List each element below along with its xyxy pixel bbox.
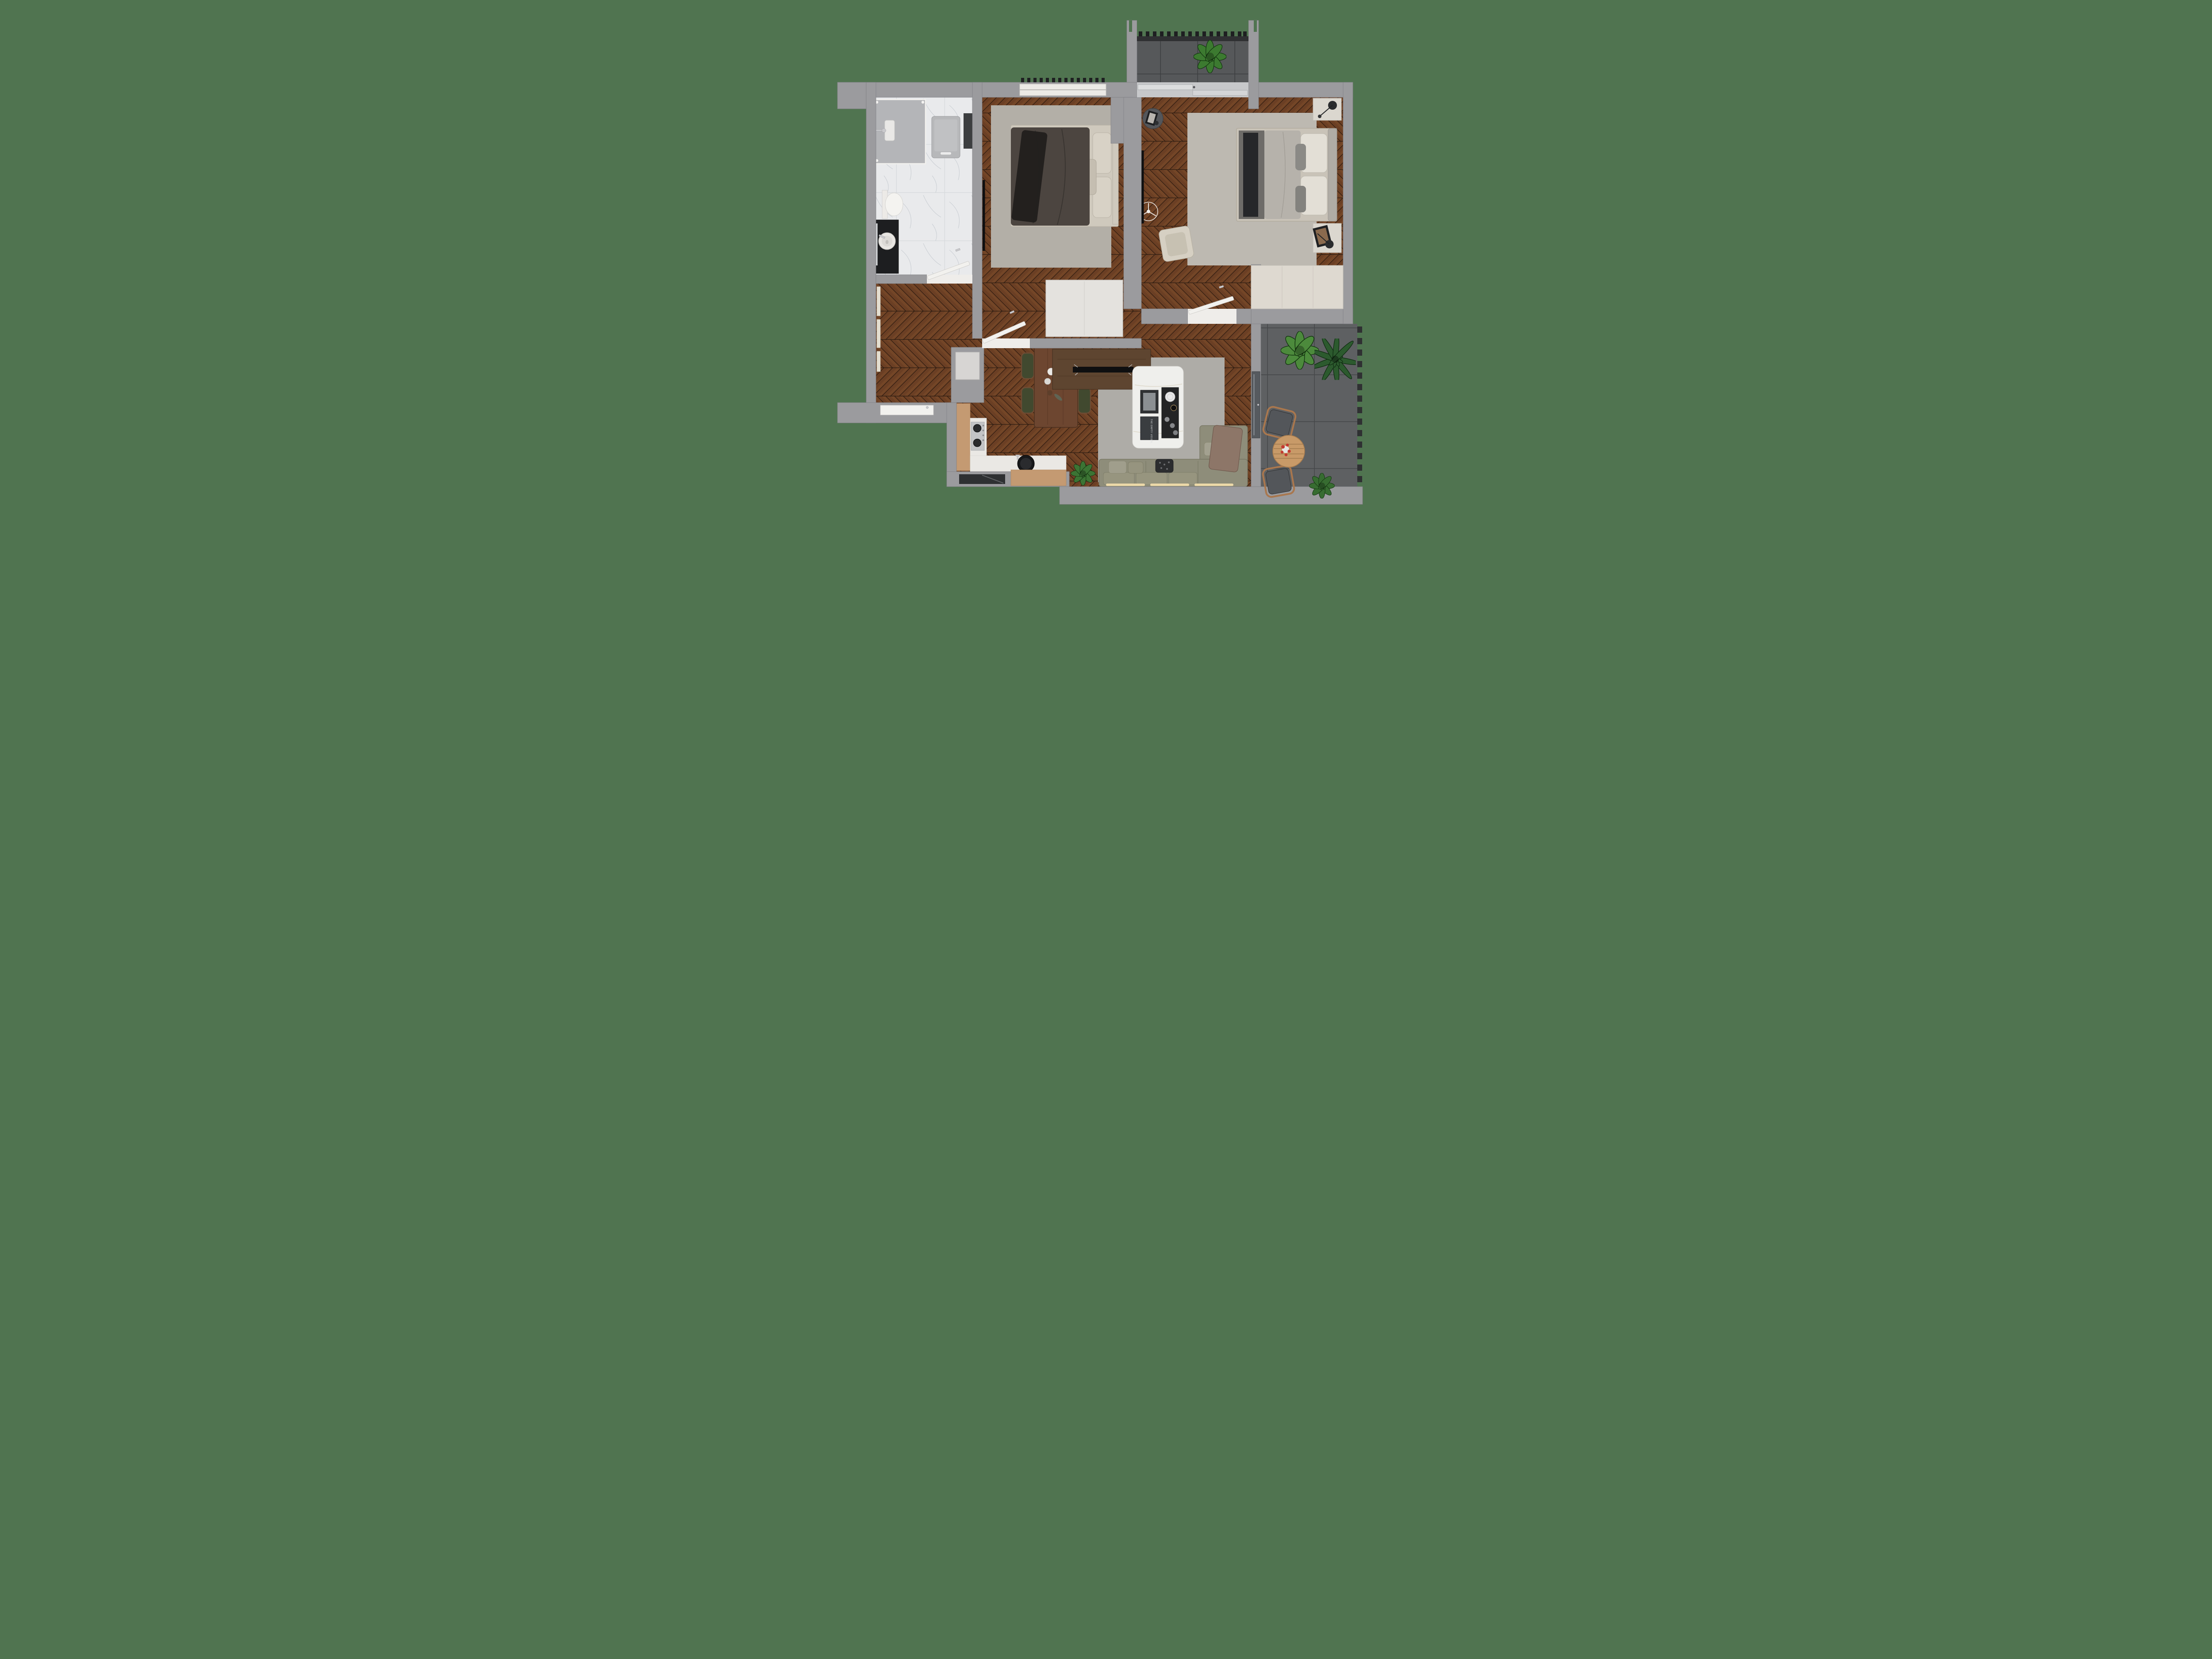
outdoor-chair xyxy=(1262,406,1297,440)
burner xyxy=(973,439,981,446)
balcony-top-plant xyxy=(1194,40,1226,73)
kitchen-faucet-spout xyxy=(1016,455,1020,456)
book-cover-image xyxy=(1143,393,1156,411)
lamp-base xyxy=(1318,115,1321,118)
living-room-plant xyxy=(1071,461,1095,485)
balcony-top-railing xyxy=(1129,20,1257,41)
hallway-floor xyxy=(876,284,956,403)
toilet-bowl xyxy=(885,193,903,216)
wall-bedroom-divider xyxy=(1124,97,1141,309)
knob xyxy=(983,430,984,431)
wall-left xyxy=(866,82,876,423)
mirror xyxy=(876,223,878,265)
sink-inner xyxy=(1020,458,1032,469)
wall-bedroom2-bottom-a xyxy=(1141,309,1188,324)
hall-shelf xyxy=(877,287,880,316)
hall-shelf xyxy=(877,319,880,348)
armchair xyxy=(1158,225,1194,262)
brown-blanket xyxy=(1209,425,1243,472)
schefflera-plant xyxy=(1281,331,1319,369)
tray-bowl xyxy=(1171,405,1177,411)
balcony-right-glass-door xyxy=(1252,372,1260,438)
wall-notch xyxy=(1129,20,1132,32)
entry-door xyxy=(880,405,933,415)
tray-plate xyxy=(1165,392,1175,402)
seat-cushion xyxy=(1103,472,1134,485)
bed2-headboard-bench xyxy=(1328,128,1337,221)
wall-balcony-top xyxy=(1251,309,1353,324)
book-empty-vessel xyxy=(1141,417,1158,440)
balcony-small-plant xyxy=(1309,473,1335,499)
flat-tv xyxy=(1073,367,1133,373)
floor-plan-canvas: THE EMPTY VESSEL xyxy=(752,0,1460,531)
storage-niche xyxy=(964,113,972,149)
sofa-pillow xyxy=(1109,461,1126,473)
knob xyxy=(983,425,984,426)
floor-glow xyxy=(1106,484,1145,486)
burner xyxy=(973,424,981,432)
wall-bathroom-divider xyxy=(972,82,982,338)
seat-cushion xyxy=(1136,472,1167,485)
coaster xyxy=(1173,430,1178,435)
dining-chair xyxy=(1022,353,1034,379)
knob xyxy=(983,439,984,441)
entry-door-handle xyxy=(926,406,928,408)
window-bench xyxy=(1251,265,1343,309)
dining-chair xyxy=(1078,388,1091,413)
kitchen-tan-counter xyxy=(956,403,970,471)
coaster xyxy=(1170,423,1175,428)
wall-topbalcony-right xyxy=(1248,20,1259,109)
glass-hinge xyxy=(922,101,924,104)
wall-right xyxy=(1343,82,1353,324)
shower-head xyxy=(882,128,886,132)
coaster xyxy=(1165,417,1170,422)
floor-glow xyxy=(1194,484,1233,486)
wall-bedroom1-bottom xyxy=(1030,338,1141,348)
bed2-duvet xyxy=(1264,131,1301,219)
outdoor-table xyxy=(1273,435,1305,467)
sink-drain xyxy=(886,240,889,244)
washer-lid xyxy=(934,119,957,151)
washer-handle xyxy=(941,152,951,155)
floor-glow xyxy=(1150,484,1189,486)
knob xyxy=(983,434,984,436)
glass-door-handle xyxy=(1257,404,1259,406)
balcony-top-floor xyxy=(1137,41,1248,82)
railing-bar xyxy=(1137,36,1248,41)
seat-cushion xyxy=(1169,472,1197,485)
patterned-pillow xyxy=(1156,459,1173,472)
wall-pier-topleft xyxy=(837,82,866,109)
dining-chair xyxy=(1022,388,1034,413)
wall-top-right xyxy=(1248,82,1353,97)
pinecone xyxy=(1047,390,1052,396)
herringbone-throw xyxy=(1243,133,1258,217)
table-lamp xyxy=(1154,121,1159,125)
shower-tray xyxy=(885,120,895,141)
fridge xyxy=(956,352,979,380)
wall-bedroom2-bottom-b xyxy=(1237,309,1251,324)
outdoor-chair xyxy=(1262,465,1295,498)
wall-bathroom-bottom xyxy=(876,275,927,284)
kitchen-window xyxy=(959,474,1005,484)
slider-handle xyxy=(1193,86,1195,88)
bedroom1-wall-tv xyxy=(983,180,985,251)
kitchen-window-counter xyxy=(1011,470,1066,486)
decor-plate xyxy=(1045,378,1051,384)
hall-shelf xyxy=(877,351,880,372)
book-title-text: THE EMPTY VESSEL xyxy=(1150,419,1152,443)
bed2-gray-pillow xyxy=(1295,144,1306,170)
balcony-top-sliding-door xyxy=(1137,82,1248,97)
bed2-gray-pillow xyxy=(1295,186,1306,212)
sofa-pillow xyxy=(1128,462,1143,473)
wall-notch xyxy=(1254,20,1257,32)
bedroom2-wall-tv xyxy=(1141,150,1144,223)
entry-door-leaf xyxy=(880,405,933,415)
